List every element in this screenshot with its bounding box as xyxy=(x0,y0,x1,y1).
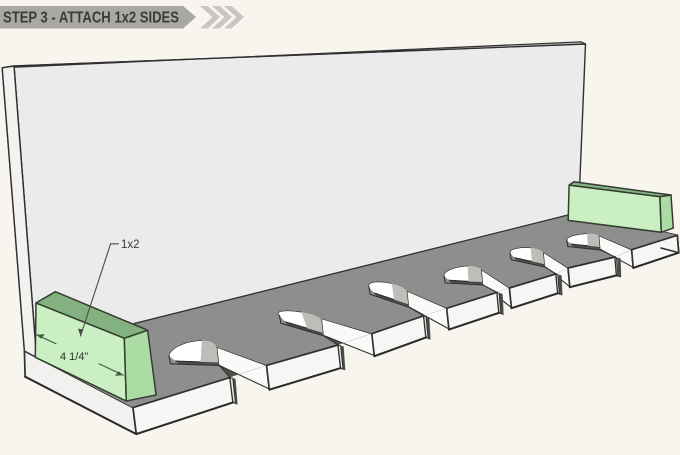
svg-text:STEP 3 - ATTACH 1x2 SIDES: STEP 3 - ATTACH 1x2 SIDES xyxy=(3,10,179,27)
svg-text:4 1/4”: 4 1/4” xyxy=(60,351,88,363)
svg-text:1x2: 1x2 xyxy=(121,239,140,251)
